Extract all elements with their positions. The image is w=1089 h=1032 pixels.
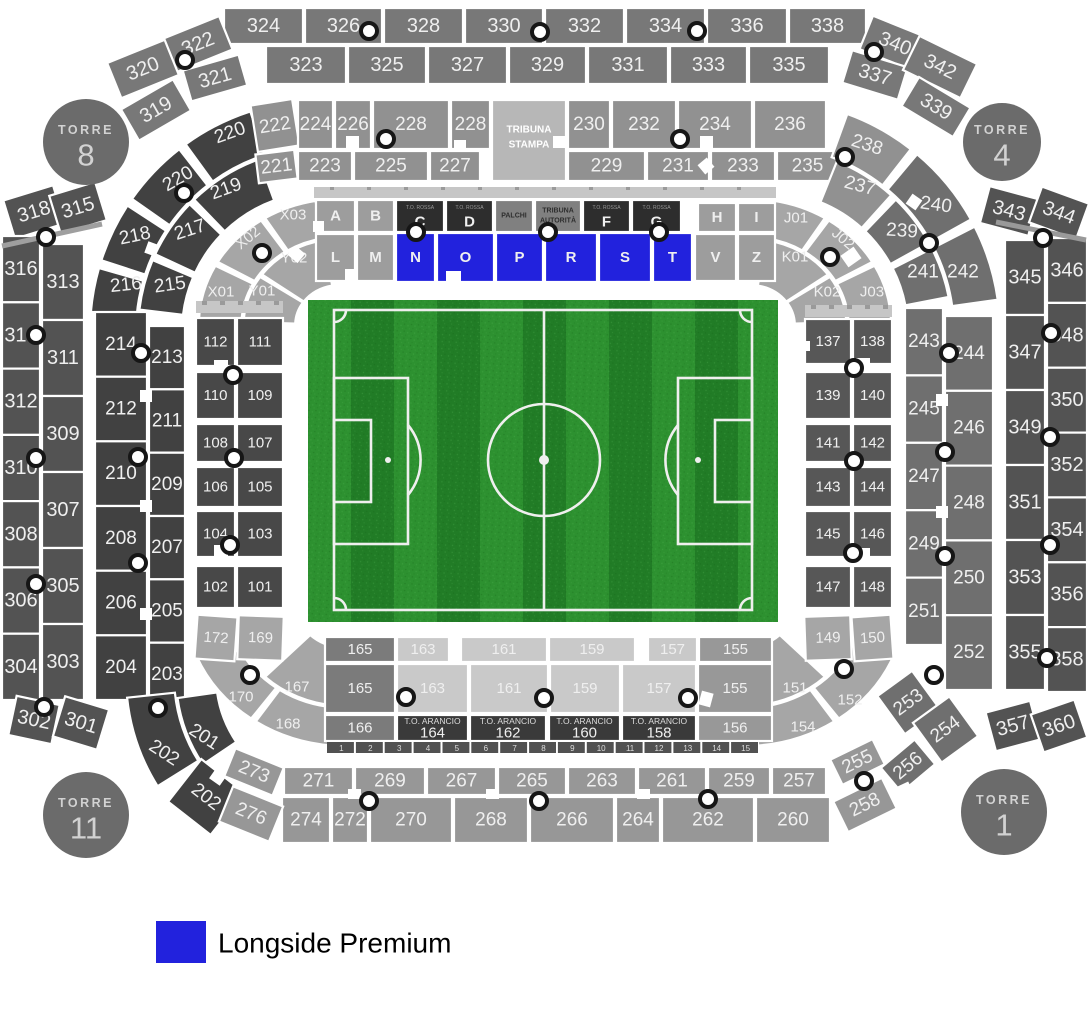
svg-text:246: 246 xyxy=(953,418,985,439)
svg-text:328: 328 xyxy=(407,15,440,37)
svg-text:203: 203 xyxy=(151,664,183,685)
svg-text:J03: J03 xyxy=(860,284,884,301)
svg-text:F: F xyxy=(602,214,611,231)
svg-text:170: 170 xyxy=(228,689,253,706)
svg-text:213: 213 xyxy=(151,347,183,368)
svg-text:232: 232 xyxy=(628,114,660,135)
svg-text:236: 236 xyxy=(774,114,806,135)
svg-text:349: 349 xyxy=(1008,417,1041,439)
svg-text:112: 112 xyxy=(204,334,228,351)
svg-text:15: 15 xyxy=(741,744,750,753)
svg-text:231: 231 xyxy=(662,156,694,177)
svg-text:259: 259 xyxy=(723,771,755,792)
svg-text:K01: K01 xyxy=(782,249,809,266)
svg-text:350: 350 xyxy=(1050,389,1083,411)
svg-text:141: 141 xyxy=(815,435,840,452)
svg-text:335: 335 xyxy=(772,54,805,76)
svg-text:140: 140 xyxy=(860,387,885,404)
svg-text:O: O xyxy=(460,249,472,266)
svg-text:154: 154 xyxy=(790,719,815,736)
svg-text:155: 155 xyxy=(723,641,748,658)
svg-text:TORRE: TORRE xyxy=(58,796,114,810)
svg-text:111: 111 xyxy=(249,334,272,351)
svg-text:226: 226 xyxy=(337,114,369,135)
svg-text:249: 249 xyxy=(908,533,940,554)
svg-text:228: 228 xyxy=(455,114,487,135)
svg-text:331: 331 xyxy=(611,54,644,76)
svg-text:316: 316 xyxy=(4,258,37,280)
svg-text:266: 266 xyxy=(556,810,588,831)
svg-text:265: 265 xyxy=(516,771,548,792)
svg-text:346: 346 xyxy=(1050,259,1083,281)
svg-text:138: 138 xyxy=(860,333,885,350)
svg-text:106: 106 xyxy=(203,479,228,496)
svg-text:163: 163 xyxy=(410,641,435,658)
svg-text:333: 333 xyxy=(692,54,725,76)
svg-text:239: 239 xyxy=(885,219,918,242)
svg-text:355: 355 xyxy=(1008,642,1041,664)
svg-text:352: 352 xyxy=(1050,454,1083,476)
svg-text:110: 110 xyxy=(204,387,228,404)
svg-text:144: 144 xyxy=(860,479,885,496)
svg-text:157: 157 xyxy=(660,641,685,658)
svg-text:11: 11 xyxy=(70,811,102,846)
svg-text:8: 8 xyxy=(541,744,546,753)
svg-text:M: M xyxy=(369,249,382,266)
svg-text:Longside Premium: Longside Premium xyxy=(218,928,451,959)
svg-text:13: 13 xyxy=(683,744,692,753)
svg-text:12: 12 xyxy=(655,744,664,753)
svg-text:162: 162 xyxy=(495,725,520,742)
svg-text:267: 267 xyxy=(446,771,478,792)
svg-text:224: 224 xyxy=(300,114,332,135)
svg-text:334: 334 xyxy=(649,15,682,37)
svg-text:248: 248 xyxy=(953,493,985,514)
svg-text:326: 326 xyxy=(327,15,360,37)
svg-text:212: 212 xyxy=(105,399,137,420)
svg-text:269: 269 xyxy=(374,771,406,792)
svg-text:158: 158 xyxy=(646,725,671,742)
svg-text:338: 338 xyxy=(811,15,844,37)
svg-text:11: 11 xyxy=(626,744,635,753)
svg-text:312: 312 xyxy=(4,391,37,413)
svg-text:325: 325 xyxy=(370,54,403,76)
svg-text:148: 148 xyxy=(860,579,885,596)
svg-text:J01: J01 xyxy=(784,210,808,227)
svg-text:159: 159 xyxy=(579,641,604,658)
svg-text:143: 143 xyxy=(815,479,840,496)
svg-text:356: 356 xyxy=(1050,584,1083,606)
svg-text:T.O. ROSSA: T.O. ROSSA xyxy=(642,205,671,211)
svg-text:227: 227 xyxy=(439,156,471,177)
svg-text:X03: X03 xyxy=(280,207,307,224)
svg-text:T.O. ROSSA: T.O. ROSSA xyxy=(455,205,484,211)
svg-text:210: 210 xyxy=(105,463,137,484)
svg-text:245: 245 xyxy=(908,399,940,420)
svg-text:8: 8 xyxy=(77,138,94,173)
svg-text:L: L xyxy=(331,249,340,266)
svg-text:313: 313 xyxy=(46,271,79,293)
svg-text:324: 324 xyxy=(247,15,280,37)
svg-text:150: 150 xyxy=(859,629,885,648)
svg-text:P: P xyxy=(514,249,524,266)
svg-text:R: R xyxy=(566,249,577,266)
svg-text:347: 347 xyxy=(1008,342,1041,364)
svg-text:D: D xyxy=(464,214,475,231)
svg-text:251: 251 xyxy=(908,601,940,622)
svg-text:A: A xyxy=(330,208,341,225)
svg-text:146: 146 xyxy=(860,526,885,543)
svg-text:252: 252 xyxy=(953,642,985,663)
svg-text:329: 329 xyxy=(531,54,564,76)
svg-text:105: 105 xyxy=(247,479,272,496)
svg-text:157: 157 xyxy=(646,680,671,697)
svg-text:262: 262 xyxy=(692,810,724,831)
svg-text:268: 268 xyxy=(475,810,507,831)
svg-text:TORRE: TORRE xyxy=(976,793,1032,807)
svg-text:109: 109 xyxy=(247,387,272,404)
svg-text:6: 6 xyxy=(484,744,489,753)
svg-text:139: 139 xyxy=(815,387,840,404)
svg-text:327: 327 xyxy=(451,54,484,76)
svg-text:304: 304 xyxy=(4,656,37,678)
svg-text:101: 101 xyxy=(247,579,272,596)
svg-text:7: 7 xyxy=(512,744,517,753)
svg-text:323: 323 xyxy=(289,54,322,76)
svg-text:1: 1 xyxy=(995,808,1012,843)
svg-text:208: 208 xyxy=(105,528,137,549)
svg-text:274: 274 xyxy=(290,810,322,831)
svg-text:164: 164 xyxy=(420,725,445,742)
svg-text:215: 215 xyxy=(153,272,187,297)
svg-text:166: 166 xyxy=(347,720,372,737)
svg-text:225: 225 xyxy=(375,156,407,177)
svg-text:S: S xyxy=(620,249,630,266)
svg-text:161: 161 xyxy=(491,641,516,658)
svg-text:149: 149 xyxy=(815,629,841,647)
svg-text:142: 142 xyxy=(860,435,885,452)
svg-text:X01: X01 xyxy=(208,284,235,301)
svg-text:332: 332 xyxy=(568,15,601,37)
svg-text:207: 207 xyxy=(151,537,183,558)
svg-text:165: 165 xyxy=(347,641,372,658)
svg-text:107: 107 xyxy=(247,435,272,452)
svg-text:264: 264 xyxy=(622,810,654,831)
svg-text:156: 156 xyxy=(722,720,747,737)
svg-text:169: 169 xyxy=(248,629,274,647)
svg-text:240: 240 xyxy=(919,192,953,217)
svg-text:307: 307 xyxy=(46,499,79,521)
svg-text:336: 336 xyxy=(730,15,763,37)
svg-text:221: 221 xyxy=(259,154,293,179)
svg-text:250: 250 xyxy=(953,567,985,588)
svg-text:160: 160 xyxy=(572,725,597,742)
svg-text:159: 159 xyxy=(572,680,597,697)
svg-text:152: 152 xyxy=(837,692,862,709)
svg-text:K02: K02 xyxy=(814,284,841,301)
svg-text:1: 1 xyxy=(339,744,344,753)
svg-text:163: 163 xyxy=(420,680,445,697)
svg-text:211: 211 xyxy=(152,411,182,432)
svg-text:205: 205 xyxy=(151,601,183,622)
svg-text:167: 167 xyxy=(284,679,309,696)
svg-text:228: 228 xyxy=(395,114,427,135)
svg-text:209: 209 xyxy=(151,474,183,495)
svg-text:206: 206 xyxy=(105,593,137,614)
svg-text:3: 3 xyxy=(397,744,402,753)
svg-text:T.O. ROSSA: T.O. ROSSA xyxy=(592,205,621,211)
svg-text:TORRE: TORRE xyxy=(58,123,114,137)
svg-text:241: 241 xyxy=(907,262,939,283)
svg-text:345: 345 xyxy=(1008,267,1041,289)
svg-text:353: 353 xyxy=(1008,567,1041,589)
svg-text:242: 242 xyxy=(947,262,979,283)
svg-text:I: I xyxy=(754,209,758,226)
svg-text:137: 137 xyxy=(815,333,840,350)
svg-text:260: 260 xyxy=(777,810,809,831)
svg-text:204: 204 xyxy=(105,657,137,678)
svg-text:TRIBUNA: TRIBUNA xyxy=(507,125,552,136)
svg-text:147: 147 xyxy=(815,579,840,596)
svg-text:103: 103 xyxy=(247,526,272,543)
svg-text:Z: Z xyxy=(752,249,761,266)
svg-text:271: 271 xyxy=(303,771,335,792)
svg-text:4: 4 xyxy=(993,138,1010,173)
svg-text:PALCHI: PALCHI xyxy=(501,213,527,220)
svg-text:168: 168 xyxy=(275,716,300,733)
svg-text:108: 108 xyxy=(203,435,228,452)
svg-text:2: 2 xyxy=(368,744,373,753)
svg-text:102: 102 xyxy=(203,579,228,596)
svg-text:Y01: Y01 xyxy=(249,283,276,300)
svg-text:303: 303 xyxy=(46,651,79,673)
svg-text:TRIBUNA: TRIBUNA xyxy=(542,208,574,215)
svg-text:14: 14 xyxy=(712,744,721,753)
svg-text:351: 351 xyxy=(1008,492,1041,514)
svg-text:216: 216 xyxy=(109,273,143,297)
svg-text:270: 270 xyxy=(395,810,427,831)
svg-text:309: 309 xyxy=(46,423,79,445)
svg-text:272: 272 xyxy=(334,810,366,831)
svg-text:233: 233 xyxy=(727,156,759,177)
svg-text:10: 10 xyxy=(597,744,606,753)
svg-text:257: 257 xyxy=(783,771,815,792)
svg-text:261: 261 xyxy=(656,771,688,792)
svg-text:TORRE: TORRE xyxy=(974,123,1030,137)
svg-text:4: 4 xyxy=(426,744,431,753)
svg-text:243: 243 xyxy=(908,331,940,352)
svg-text:229: 229 xyxy=(591,156,623,177)
svg-text:235: 235 xyxy=(792,156,824,177)
svg-text:223: 223 xyxy=(309,156,341,177)
svg-text:330: 330 xyxy=(487,15,520,37)
svg-text:172: 172 xyxy=(203,629,229,648)
svg-text:161: 161 xyxy=(496,680,521,697)
svg-text:230: 230 xyxy=(573,114,605,135)
svg-text:155: 155 xyxy=(722,680,747,697)
svg-text:263: 263 xyxy=(586,771,618,792)
svg-text:308: 308 xyxy=(4,523,37,545)
svg-text:311: 311 xyxy=(47,347,79,369)
svg-text:165: 165 xyxy=(347,680,372,697)
svg-text:T: T xyxy=(668,249,677,266)
svg-text:STAMPA: STAMPA xyxy=(509,140,550,151)
svg-text:T.O. ROSSA: T.O. ROSSA xyxy=(406,205,435,211)
svg-text:234: 234 xyxy=(699,114,731,135)
svg-text:V: V xyxy=(710,249,720,266)
svg-text:N: N xyxy=(410,249,421,266)
svg-text:145: 145 xyxy=(815,526,840,543)
svg-text:5: 5 xyxy=(455,744,460,753)
svg-text:H: H xyxy=(712,209,723,226)
svg-text:247: 247 xyxy=(908,466,940,487)
svg-text:B: B xyxy=(370,208,381,225)
svg-text:305: 305 xyxy=(46,575,79,597)
svg-text:9: 9 xyxy=(570,744,575,753)
